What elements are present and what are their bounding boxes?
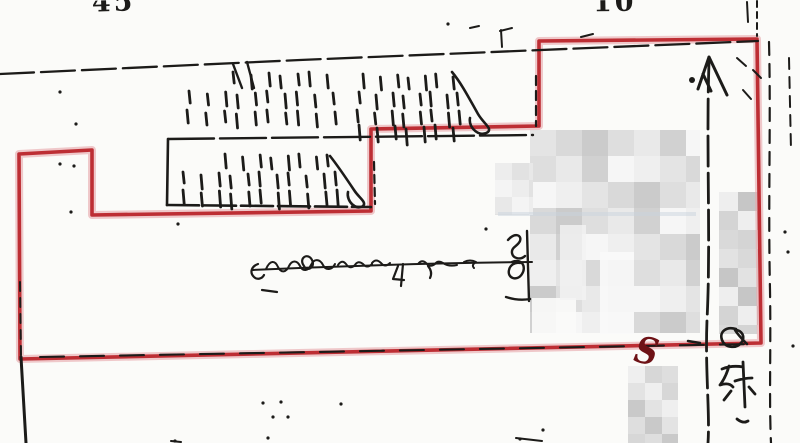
scan-speck bbox=[446, 22, 449, 25]
scan-speck bbox=[279, 400, 282, 403]
scan-speck bbox=[689, 77, 695, 83]
boundary-line-left-lower bbox=[21, 357, 26, 443]
scan-speck bbox=[173, 439, 176, 442]
scan-speck bbox=[791, 344, 794, 347]
scan-speck bbox=[58, 162, 61, 165]
scan-speck bbox=[261, 401, 264, 404]
lot-number-text: 45 bbox=[92, 0, 138, 15]
lot-number-partial-center: 10 bbox=[593, 0, 639, 14]
scan-speck bbox=[266, 436, 269, 439]
mosaic-patch bbox=[600, 252, 634, 334]
redaction-mosaic bbox=[628, 366, 678, 443]
up-arrow-head bbox=[698, 57, 727, 95]
scan-speck bbox=[176, 222, 179, 225]
scan-speck bbox=[783, 230, 786, 233]
scan-speck bbox=[339, 402, 342, 405]
redaction-mosaic bbox=[495, 163, 533, 215]
scan-speck bbox=[286, 415, 289, 418]
scan-speck bbox=[518, 437, 521, 440]
dimension-text-scrawl bbox=[418, 261, 476, 269]
scan-speck bbox=[58, 90, 61, 93]
scan-speck bbox=[786, 250, 789, 253]
road-line bbox=[789, 58, 791, 150]
parcel-line bbox=[167, 139, 168, 205]
dimension-end-mark bbox=[506, 231, 530, 301]
lot-number-partial-left: 45 bbox=[92, 0, 138, 15]
dimension-text-scrawl bbox=[393, 264, 431, 286]
scan-speck bbox=[484, 227, 487, 230]
mosaic-patch bbox=[498, 212, 696, 216]
hatch-marks bbox=[183, 72, 460, 209]
scan-speck bbox=[271, 415, 274, 418]
scan-speck bbox=[69, 210, 72, 213]
street-line-top bbox=[0, 41, 758, 74]
scan-speck bbox=[541, 428, 544, 431]
scan-speck bbox=[72, 164, 75, 167]
kanji-annotation bbox=[720, 362, 755, 422]
parcel-line bbox=[168, 135, 533, 139]
scanned-cadastral-map: 45 10 S bbox=[0, 0, 800, 443]
mosaic-patch bbox=[560, 225, 586, 300]
dimension-line bbox=[252, 262, 532, 270]
site-plan-drawing bbox=[0, 0, 800, 443]
road-line bbox=[707, 62, 709, 443]
mosaic-patch bbox=[532, 298, 576, 334]
lot-number-text: 10 bbox=[593, 0, 639, 14]
road-line bbox=[769, 42, 771, 443]
edge-fragments bbox=[171, 438, 542, 442]
parcel-line bbox=[167, 205, 371, 207]
road-line bbox=[747, 2, 748, 22]
redaction-mosaic bbox=[719, 192, 758, 334]
scan-speck bbox=[74, 122, 77, 125]
